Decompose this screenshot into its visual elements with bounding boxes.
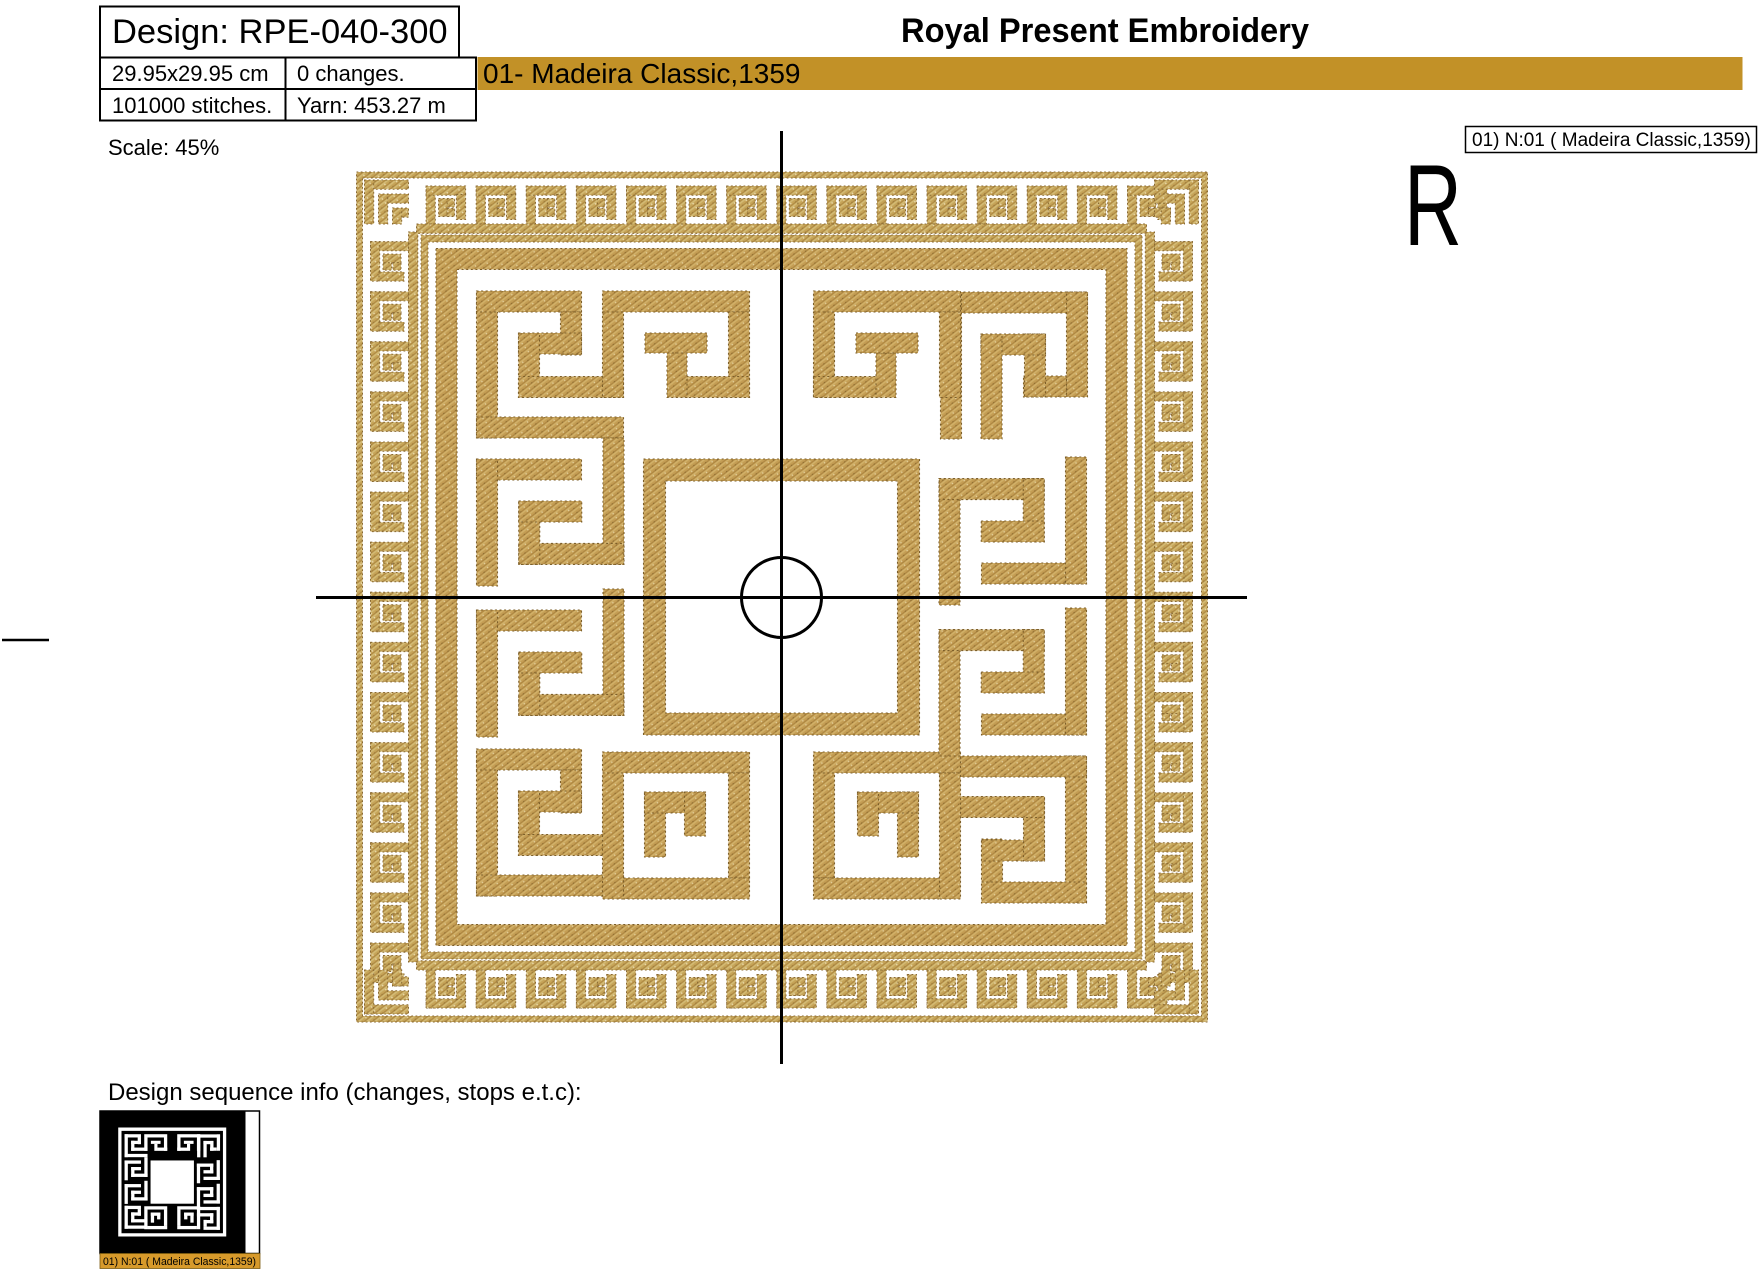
svg-text:0 changes.: 0 changes. xyxy=(297,61,405,86)
svg-text:01- Madeira Classic,1359: 01- Madeira Classic,1359 xyxy=(483,58,801,89)
svg-text:Royal Present Embroidery: Royal Present Embroidery xyxy=(901,12,1309,50)
svg-text:R: R xyxy=(1404,142,1462,270)
svg-text:01) N:01 ( Madeira Classic,135: 01) N:01 ( Madeira Classic,1359) xyxy=(103,1256,256,1268)
svg-text:Scale: 45%: Scale: 45% xyxy=(108,135,219,160)
svg-text:Yarn: 453.27 m: Yarn: 453.27 m xyxy=(297,93,446,118)
svg-text:01) N:01 ( Madeira Classic,135: 01) N:01 ( Madeira Classic,1359) xyxy=(1472,130,1751,151)
svg-text:Design: RPE-040-300: Design: RPE-040-300 xyxy=(112,13,448,51)
svg-text:29.95x29.95 cm: 29.95x29.95 cm xyxy=(112,61,269,86)
svg-text:101000 stitches.: 101000 stitches. xyxy=(112,93,272,118)
svg-text:Design sequence info (changes,: Design sequence info (changes, stops e.t… xyxy=(108,1079,582,1106)
